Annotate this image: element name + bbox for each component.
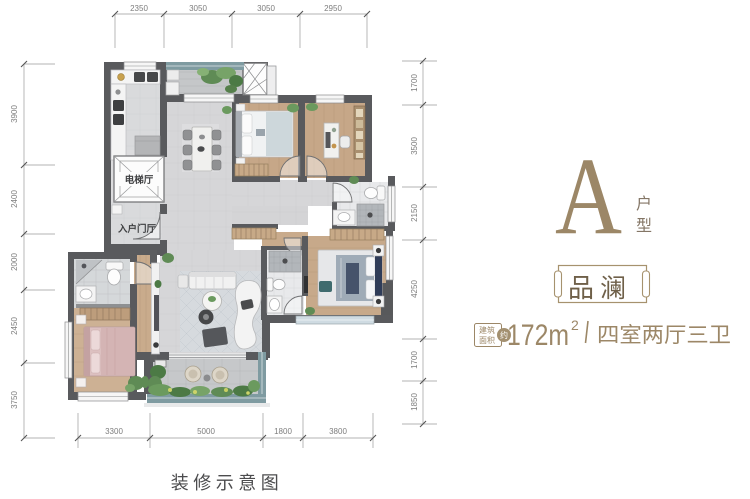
svg-text:3900: 3900 (10, 105, 19, 123)
svg-text:3300: 3300 (105, 427, 123, 436)
svg-text:1850: 1850 (410, 393, 419, 411)
svg-text:1700: 1700 (410, 351, 419, 369)
svg-text:3750: 3750 (10, 391, 19, 409)
svg-text:户: 户 (636, 195, 652, 213)
svg-text:3050: 3050 (189, 4, 207, 13)
svg-text:2400: 2400 (10, 190, 19, 208)
svg-text:装修示意图: 装修示意图 (171, 473, 284, 493)
svg-text:电梯厅: 电梯厅 (125, 174, 154, 186)
svg-text:入户门厅: 入户门厅 (117, 223, 157, 235)
svg-text:5000: 5000 (197, 427, 215, 436)
svg-text:2350: 2350 (130, 4, 148, 13)
svg-text:2450: 2450 (10, 317, 19, 335)
svg-text:型: 型 (636, 217, 652, 235)
svg-text:2150: 2150 (410, 204, 419, 222)
svg-text:2950: 2950 (324, 4, 342, 13)
svg-text:面积: 面积 (479, 335, 495, 345)
svg-text:1800: 1800 (274, 427, 292, 436)
svg-text:172m: 172m (507, 319, 569, 352)
svg-text:品澜: 品澜 (568, 273, 632, 303)
svg-text:四室两厅三卫: 四室两厅三卫 (597, 324, 731, 347)
svg-text:建筑: 建筑 (479, 325, 495, 335)
svg-text:3800: 3800 (329, 427, 347, 436)
svg-text:4250: 4250 (410, 280, 419, 298)
svg-text:2: 2 (571, 317, 579, 333)
svg-text:3500: 3500 (410, 137, 419, 155)
svg-text:A: A (555, 135, 622, 257)
svg-text:3050: 3050 (257, 4, 275, 13)
svg-text:2000: 2000 (10, 253, 19, 271)
svg-text:1700: 1700 (410, 74, 419, 92)
